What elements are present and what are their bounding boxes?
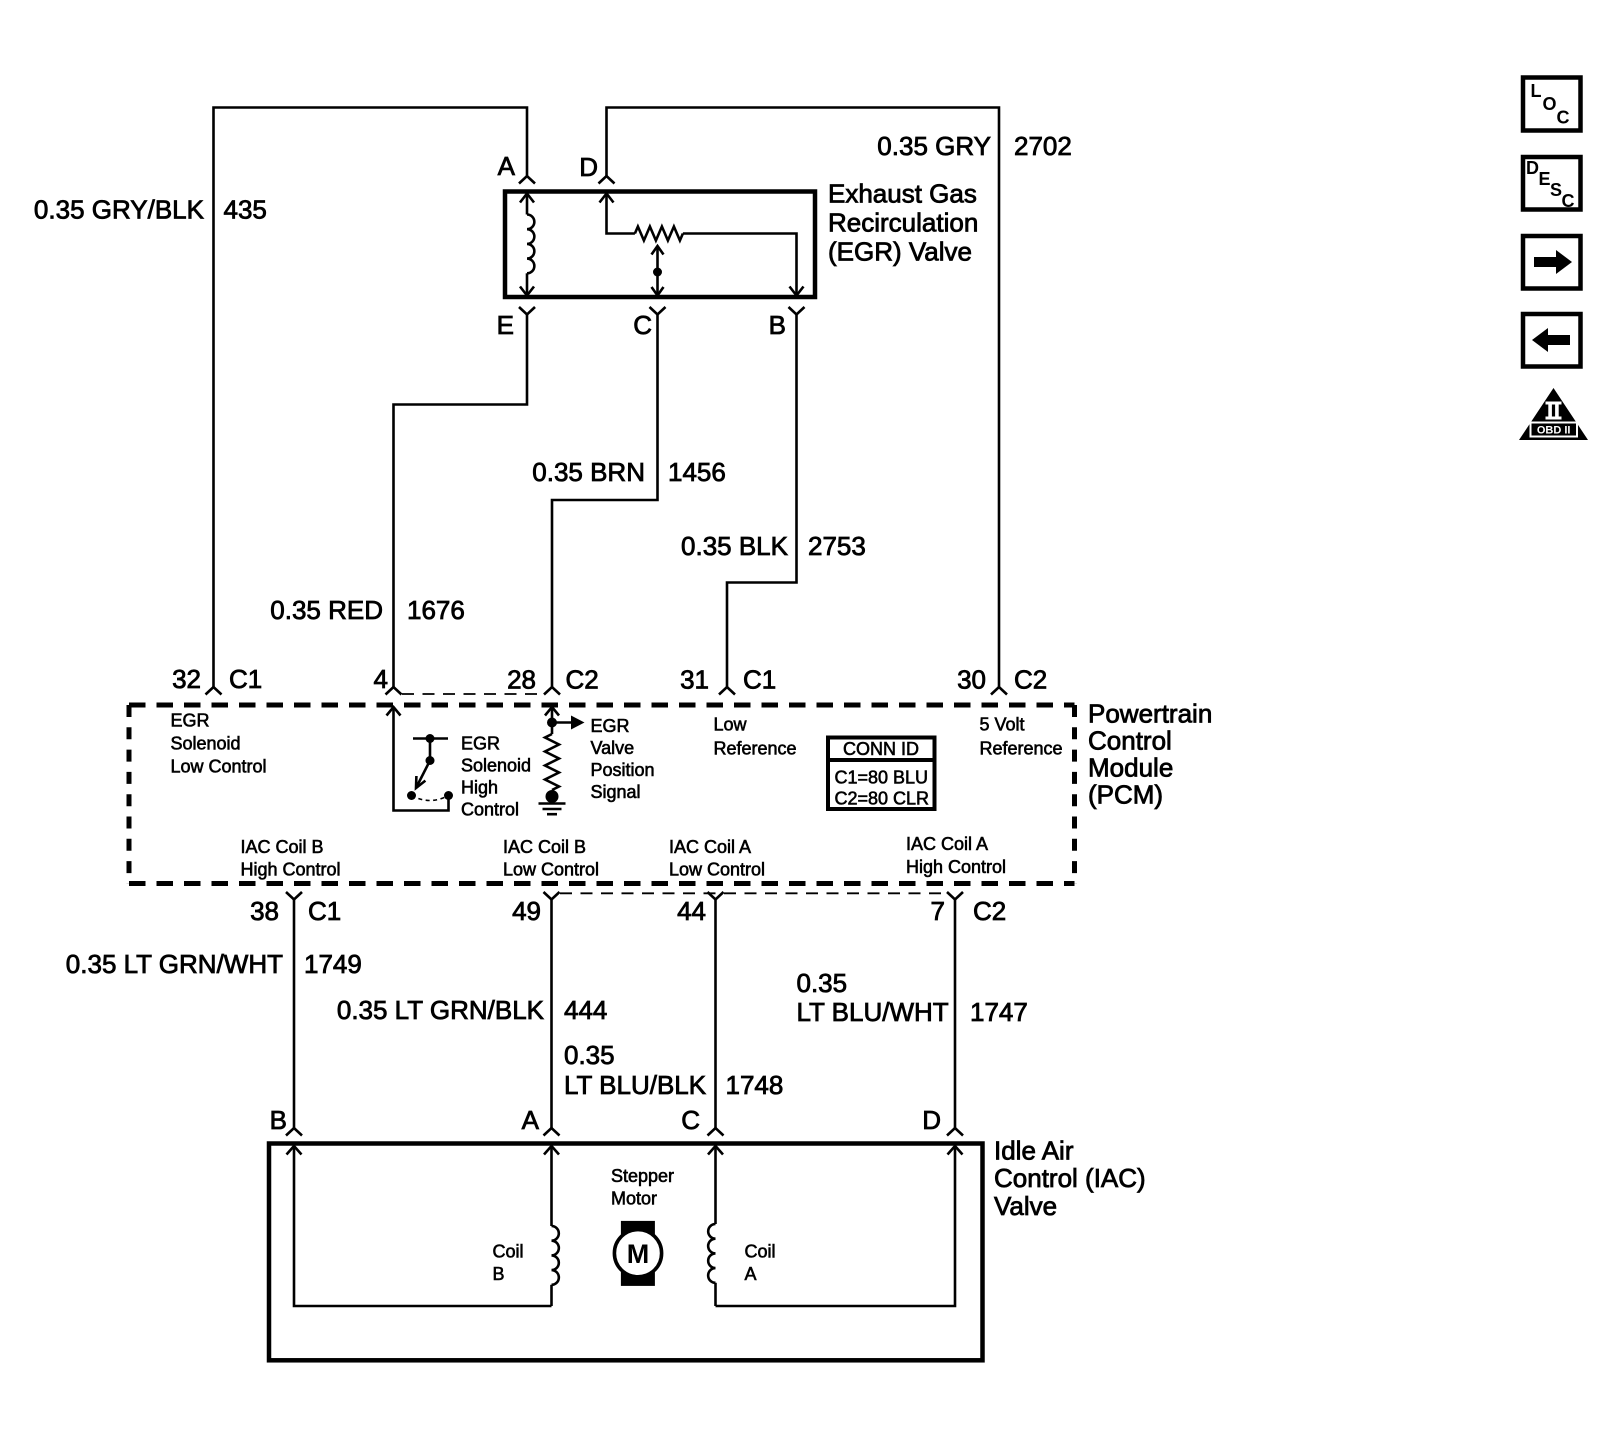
svg-text:C1=80 BLU: C1=80 BLU	[835, 768, 929, 788]
svg-text:0.35 BLK: 0.35 BLK	[681, 531, 789, 561]
svg-text:Position: Position	[591, 760, 655, 780]
svg-text:435: 435	[224, 195, 267, 225]
svg-text:1747: 1747	[970, 997, 1028, 1027]
svg-text:B: B	[769, 310, 786, 340]
svg-text:Solenoid: Solenoid	[171, 734, 241, 754]
svg-text:C2: C2	[1014, 665, 1047, 695]
svg-text:444: 444	[564, 995, 607, 1025]
svg-text:High: High	[461, 778, 498, 798]
svg-text:5 Volt: 5 Volt	[980, 715, 1025, 735]
svg-text:4: 4	[374, 664, 388, 694]
svg-text:0.35 GRY/BLK: 0.35 GRY/BLK	[34, 195, 205, 225]
svg-text:Recirculation: Recirculation	[828, 208, 978, 238]
svg-text:Valve: Valve	[994, 1191, 1057, 1221]
svg-text:EGR: EGR	[171, 711, 210, 731]
svg-text:Valve: Valve	[591, 738, 635, 758]
svg-text:2702: 2702	[1014, 131, 1072, 161]
svg-text:49: 49	[512, 896, 541, 926]
svg-text:1749: 1749	[304, 949, 362, 979]
svg-text:1676: 1676	[407, 595, 465, 625]
svg-text:Powertrain: Powertrain	[1088, 699, 1212, 729]
svg-text:Coil: Coil	[493, 1242, 524, 1262]
svg-text:LT BLU/BLK: LT BLU/BLK	[564, 1070, 707, 1100]
svg-text:C: C	[633, 310, 652, 340]
svg-text:D: D	[579, 152, 598, 182]
svg-text:IAC Coil B: IAC Coil B	[503, 837, 586, 857]
svg-text:High Control: High Control	[906, 857, 1006, 877]
svg-text:M: M	[627, 1239, 650, 1269]
svg-text:Coil: Coil	[745, 1242, 776, 1262]
svg-text:2753: 2753	[808, 531, 866, 561]
svg-text:C: C	[681, 1105, 700, 1135]
svg-text:High Control: High Control	[241, 860, 341, 880]
svg-text:Module: Module	[1088, 753, 1173, 783]
svg-text:Idle Air: Idle Air	[994, 1136, 1074, 1166]
svg-text:28: 28	[507, 665, 536, 695]
svg-text:32: 32	[172, 664, 201, 694]
svg-text:Control (IAC): Control (IAC)	[994, 1163, 1146, 1193]
svg-text:O: O	[1543, 94, 1557, 114]
svg-text:C: C	[1562, 191, 1575, 211]
svg-text:0.35 LT GRN/BLK: 0.35 LT GRN/BLK	[337, 995, 545, 1025]
svg-text:C2: C2	[566, 665, 599, 695]
svg-text:44: 44	[677, 896, 706, 926]
svg-text:D: D	[922, 1105, 941, 1135]
svg-text:31: 31	[680, 665, 709, 695]
svg-text:7: 7	[931, 896, 945, 926]
svg-text:C1: C1	[308, 896, 341, 926]
svg-text:C1: C1	[229, 664, 262, 694]
svg-text:EGR: EGR	[461, 734, 500, 754]
svg-text:Low: Low	[714, 715, 748, 735]
svg-text:Exhaust Gas: Exhaust Gas	[828, 179, 977, 209]
svg-text:A: A	[498, 151, 516, 181]
svg-text:0.35: 0.35	[564, 1040, 615, 1070]
svg-text:1748: 1748	[726, 1070, 784, 1100]
svg-text:38: 38	[250, 896, 279, 926]
svg-text:OBD II: OBD II	[1537, 425, 1571, 437]
svg-text:IAC Coil A: IAC Coil A	[906, 834, 988, 854]
svg-text:Control: Control	[1088, 726, 1172, 756]
svg-text:(PCM): (PCM)	[1088, 780, 1163, 810]
svg-text:Low Control: Low Control	[503, 860, 599, 880]
svg-text:Reference: Reference	[714, 739, 797, 759]
svg-text:0.35 RED: 0.35 RED	[270, 595, 383, 625]
svg-text:Low Control: Low Control	[669, 860, 765, 880]
svg-text:A: A	[745, 1264, 757, 1284]
svg-text:Signal: Signal	[591, 782, 641, 802]
svg-text:Stepper: Stepper	[611, 1166, 674, 1186]
svg-text:Control: Control	[461, 800, 519, 820]
svg-text:Solenoid: Solenoid	[461, 756, 531, 776]
svg-text:EGR: EGR	[591, 716, 630, 736]
svg-text:30: 30	[957, 665, 986, 695]
svg-text:0.35 BRN: 0.35 BRN	[532, 457, 645, 487]
svg-text:0.35: 0.35	[797, 968, 848, 998]
svg-text:CONN ID: CONN ID	[843, 739, 919, 759]
svg-text:Reference: Reference	[980, 739, 1063, 759]
svg-text:B: B	[493, 1264, 505, 1284]
svg-text:C2: C2	[973, 896, 1006, 926]
svg-text:(EGR) Valve: (EGR) Valve	[828, 237, 972, 267]
svg-text:D: D	[1526, 158, 1539, 178]
svg-text:E: E	[1539, 169, 1551, 189]
svg-text:C2=80 CLR: C2=80 CLR	[835, 789, 930, 809]
svg-text:A: A	[522, 1105, 540, 1135]
svg-text:IAC Coil B: IAC Coil B	[241, 837, 324, 857]
svg-text:0.35 LT GRN/WHT: 0.35 LT GRN/WHT	[66, 949, 283, 979]
svg-text:IAC Coil A: IAC Coil A	[669, 837, 751, 857]
svg-text:LT BLU/WHT: LT BLU/WHT	[797, 997, 949, 1027]
svg-text:C1: C1	[743, 665, 776, 695]
svg-text:1456: 1456	[668, 457, 726, 487]
svg-text:C: C	[1557, 108, 1570, 128]
svg-text:E: E	[497, 310, 514, 340]
svg-text:L: L	[1531, 81, 1542, 101]
svg-text:Low Control: Low Control	[171, 757, 267, 777]
svg-text:B: B	[270, 1105, 287, 1135]
svg-text:S: S	[1550, 180, 1562, 200]
svg-text:Motor: Motor	[611, 1189, 657, 1209]
svg-text:0.35 GRY: 0.35 GRY	[877, 131, 991, 161]
